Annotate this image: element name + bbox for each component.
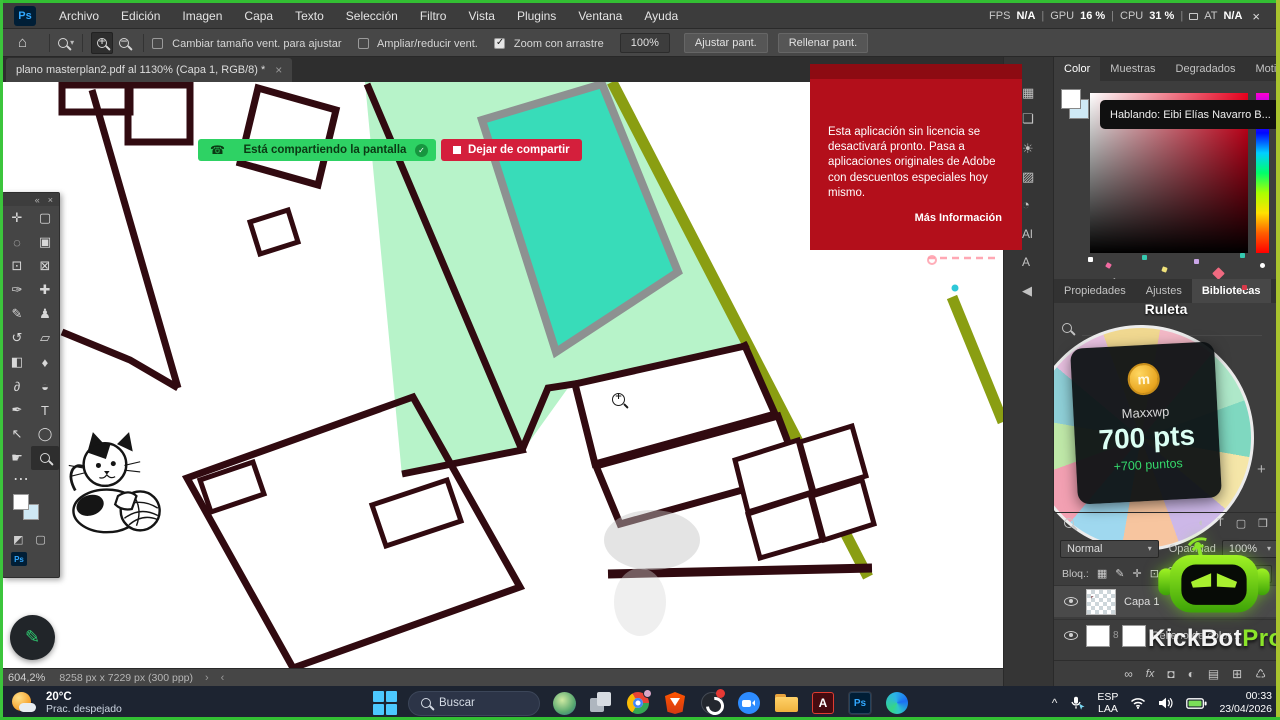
taskbar-explorer[interactable] (774, 691, 798, 715)
screen: + Ps Archivo Edición Imagen Capa Texto S… (0, 0, 1280, 720)
zoom-app-icon (738, 692, 760, 714)
cat-sticker (66, 428, 168, 545)
panel-curves-icon[interactable]: ◔ (1022, 197, 1030, 212)
visibility-eye-icon[interactable] (1064, 631, 1078, 640)
close-panel-icon[interactable]: × (48, 195, 53, 205)
search-icon (421, 698, 431, 708)
panel-adjustments-icon[interactable]: ☀ (1022, 141, 1034, 157)
hand-tool[interactable]: ☛ (3, 446, 31, 470)
fit-screen-button[interactable]: Ajustar pant. (684, 33, 768, 53)
lock-label: Bloq.: (1062, 568, 1089, 580)
frame-tool[interactable]: ⊠ (31, 254, 59, 278)
photoshop-logo: Ps (14, 6, 36, 26)
tab-bibliotecas[interactable]: Bibliotecas (1192, 279, 1271, 303)
file-explorer-icon (775, 694, 798, 713)
delete-layer-icon[interactable]: ♺ (1255, 667, 1266, 681)
menu-texto[interactable]: Texto (284, 3, 335, 29)
smudge-tool[interactable]: ∂ (3, 374, 31, 398)
blur-tool[interactable]: ♦ (31, 350, 59, 374)
tab-muestras[interactable]: Muestras (1100, 57, 1165, 81)
license-message: Esta aplicación sin licencia se desactiv… (810, 79, 1022, 201)
weather-temp: 20°C (46, 691, 122, 703)
tab-color[interactable]: Color (1054, 57, 1100, 81)
prize-card: m Maxxwp 700 pts +700 puntos (1070, 341, 1222, 504)
add-library-icon[interactable]: + (1257, 461, 1266, 478)
fill-screen-button[interactable]: Rellenar pant. (778, 33, 869, 53)
edit-toolbar-icon[interactable]: ⋯ (3, 470, 59, 488)
visibility-eye-icon[interactable] (1064, 597, 1078, 606)
tab-motivos[interactable]: Motivos (1245, 57, 1277, 81)
tray-expand-icon[interactable]: ^ (1052, 696, 1058, 710)
filter-shape-icon[interactable]: ▢ (1236, 517, 1246, 530)
search-icon[interactable] (1062, 323, 1072, 333)
weather-widget[interactable]: 20°C Prac. despejado (10, 690, 160, 716)
taskbar-task-view[interactable] (589, 691, 613, 715)
share-border (0, 0, 1280, 3)
type-tool[interactable]: T (31, 398, 59, 422)
taskbar-search[interactable]: Buscar (408, 691, 540, 716)
volume-icon[interactable] (1158, 697, 1174, 709)
chevron-down-icon[interactable]: ▾ (70, 38, 74, 47)
battery-icon[interactable] (1186, 698, 1207, 709)
layer-mask-icon[interactable]: ◘ (1167, 667, 1174, 681)
more-info-link[interactable]: Más Información (915, 212, 1002, 224)
ps-badge: Ps (11, 552, 27, 566)
chrome-icon (627, 692, 649, 714)
taskbar-zoom[interactable] (737, 691, 761, 715)
map-plot (240, 88, 336, 185)
taskbar-obs[interactable] (700, 691, 724, 715)
marquee-tool[interactable]: ▢ (31, 206, 59, 230)
speaking-toast: Hablando: Eibi Elías Navarro B... (1100, 100, 1280, 129)
object-selection-tool[interactable]: ▣ (31, 230, 59, 254)
map-boundary (62, 332, 178, 388)
zoom-tool[interactable] (31, 446, 59, 470)
menu-ventana[interactable]: Ventana (567, 3, 633, 29)
layer-group-icon[interactable]: ▤ (1208, 667, 1219, 681)
color-panel-tabs: Color Muestras Degradados Motivos (1054, 57, 1277, 81)
map-annotation-cyan (952, 285, 959, 292)
tools-panel: « × ✛ ▢ ◌ ▣ ⊡ ⊠ ✑ ✚ ✎ ♟ ↺ ▱ ◧ ♦ ∂ ◒ ✒ T … (2, 192, 60, 578)
layer-mask-thumbnail[interactable] (1122, 625, 1146, 647)
document-tab[interactable]: plano masterplan2.pdf al 1130% (Capa 1, … (6, 58, 292, 82)
language-indicator[interactable]: ESP LAA (1097, 691, 1118, 715)
taskbar-apps: A Ps (552, 691, 909, 715)
resize-windows-checkbox[interactable]: Cambiar tamaño vent. para ajustar (152, 36, 341, 50)
pen-tool[interactable]: ✒ (3, 398, 31, 422)
tab-close-icon[interactable]: × (275, 63, 282, 77)
prize-bonus: +700 puntos (1113, 456, 1183, 474)
kickbot-watermark: KickBotPro (1148, 530, 1280, 665)
lock-pixels-icon[interactable]: ✎ (1115, 567, 1124, 580)
gradient-tool[interactable]: ◧ (3, 350, 31, 374)
robot-icon (1155, 530, 1273, 626)
new-layer-icon[interactable]: ⊞ (1232, 667, 1242, 681)
phone-icon: ☎ (210, 143, 225, 157)
weather-condition: Prac. despejado (46, 703, 122, 715)
brush-tool[interactable]: ✎ (3, 302, 31, 326)
zoom-cursor-icon: + (612, 393, 625, 406)
path-selection-tool[interactable]: ↖ (3, 422, 31, 446)
tab-ajustes[interactable]: Ajustes (1136, 279, 1192, 303)
map-smudge (604, 510, 700, 570)
menu-plugins[interactable]: Plugins (506, 3, 567, 29)
acrobat-icon: A (812, 692, 834, 714)
zoom-windows-checkbox[interactable]: Ampliar/reducir vent. (358, 36, 478, 50)
task-view-icon (590, 692, 612, 714)
panel-audio-icon[interactable]: ◀ (1022, 283, 1032, 299)
photoshop-icon: Ps (849, 692, 871, 714)
license-warning-banner: Esta aplicación sin licencia se desactiv… (810, 64, 1022, 250)
link-layers-icon[interactable]: ∞ (1124, 667, 1133, 681)
status-bar: 604,2% 8258 px x 7229 px (300 ppp) › ‹ (0, 668, 1003, 686)
options-bar: ⌂ ▾ + − Cambiar tamaño vent. para ajusta… (0, 29, 1280, 57)
confetti (1242, 285, 1247, 290)
confetti (1194, 259, 1199, 264)
lasso-tool[interactable]: ◌ (3, 230, 31, 254)
search-icon[interactable] (1064, 518, 1074, 528)
dodge-tool[interactable]: ◒ (31, 374, 59, 398)
taskbar-edge[interactable] (885, 691, 909, 715)
taskbar: 20°C Prac. despejado Buscar A Ps ^ (0, 686, 1280, 720)
lock-position-icon[interactable]: ✛ (1132, 567, 1141, 580)
panel-ai-icon[interactable]: Al (1022, 227, 1033, 241)
check-icon: ✓ (415, 144, 428, 157)
lock-transparency-icon[interactable]: ▦ (1097, 567, 1107, 580)
link-chain-icon: 8 (1113, 630, 1119, 641)
crop-tool[interactable]: ⊡ (3, 254, 31, 278)
history-brush-tool[interactable]: ↺ (3, 326, 31, 350)
blend-mode-select[interactable]: Normal▾ (1060, 540, 1159, 558)
confetti (1260, 263, 1265, 268)
eraser-tool[interactable]: ▱ (31, 326, 59, 350)
filter-smart-icon[interactable]: ❒ (1258, 517, 1268, 530)
collapse-panel-icon[interactable]: « (35, 195, 40, 205)
layer-thumbnail[interactable] (1086, 589, 1116, 615)
quick-mask-icon[interactable]: ◩ (13, 533, 23, 546)
taskbar-brave[interactable] (663, 691, 687, 715)
filter-type-icon[interactable]: T (1217, 517, 1224, 529)
confetti (1088, 257, 1093, 262)
panel-gradients-icon[interactable]: ▨ (1022, 169, 1034, 185)
map-smudge (614, 568, 666, 636)
edge-icon (886, 692, 908, 714)
filter-adjustment-icon[interactable]: ◐ (1198, 517, 1205, 529)
brave-icon (665, 692, 685, 714)
status-arrow-icon[interactable]: › (205, 672, 209, 684)
zoom-tool-icon[interactable] (58, 38, 68, 48)
scrubby-zoom-checkbox[interactable]: Zoom con arrastre (494, 36, 604, 50)
menu-edicion[interactable]: Edición (110, 3, 171, 29)
checkbox-icon[interactable] (152, 38, 163, 49)
map-plot (250, 210, 298, 254)
zoom-100-button[interactable]: 100% (620, 33, 670, 53)
wifi-icon[interactable] (1130, 697, 1146, 709)
properties-panel-tabs: Propiedades Ajustes Bibliotecas (1054, 279, 1277, 303)
confetti (1240, 253, 1245, 258)
panel-character-icon[interactable]: A (1022, 255, 1030, 269)
menu-ayuda[interactable]: Ayuda (633, 3, 689, 29)
confetti (1105, 262, 1112, 269)
move-tool[interactable]: ✛ (3, 206, 31, 230)
zoom-out-button[interactable]: − (113, 32, 135, 54)
coin-icon: m (1127, 362, 1161, 396)
confetti (1142, 255, 1147, 260)
clone-stamp-tool[interactable]: ♟ (31, 302, 59, 326)
taskbar-nature-app[interactable] (552, 691, 576, 715)
stop-sharing-button[interactable]: Dejar de compartir (441, 139, 582, 161)
tab-propiedades[interactable]: Propiedades (1054, 279, 1136, 303)
home-icon[interactable]: ⌂ (18, 34, 27, 51)
taskbar-acrobat[interactable]: A (811, 691, 835, 715)
panel-comments-icon[interactable]: ❏ (1022, 111, 1034, 127)
ellipse-tool[interactable]: ◯ (31, 422, 59, 446)
fill-layer-thumbnail[interactable] (1086, 625, 1110, 647)
nature-app-icon (553, 692, 576, 715)
document-info: 8258 px x 7229 px (300 ppp) (59, 672, 193, 684)
annotate-button[interactable]: ✎ (10, 615, 55, 660)
screen-share-bar: ☎ Está compartiendo la pantalla ✓ Dejar … (198, 139, 582, 161)
kickbot-wordmark: KickBotPro (1148, 625, 1280, 653)
taskbar-photoshop[interactable]: Ps (848, 691, 872, 715)
performance-overlay: FPSN/A | GPU16 % | CPU31 % | ATN/A × (989, 3, 1260, 29)
pencil-icon: ✎ (25, 627, 40, 648)
latency-icon (1189, 13, 1198, 20)
screen-mode-icon[interactable]: ▢ (35, 533, 45, 546)
prize-points: 700 pts (1098, 419, 1196, 456)
foreground-color-swatch[interactable] (13, 494, 29, 510)
system-tray: ^ ESP LAA (1050, 686, 1272, 720)
healing-brush-tool[interactable]: ✚ (31, 278, 59, 302)
ruleta-title: Ruleta (1054, 301, 1277, 317)
menu-seleccion[interactable]: Selección (335, 3, 409, 29)
menu-capa[interactable]: Capa (233, 3, 284, 29)
zoom-in-button[interactable]: + (91, 32, 113, 54)
checkbox-icon[interactable] (358, 38, 369, 49)
prize-winner: Maxxwp (1121, 404, 1169, 421)
map-plot (372, 480, 461, 546)
scroll-left-icon[interactable]: ‹ (221, 672, 225, 684)
stop-icon (453, 146, 461, 154)
zoom-level[interactable]: 604,2% (8, 672, 45, 684)
menu-archivo[interactable]: Archivo (48, 3, 110, 29)
confetti (1212, 267, 1225, 280)
map-road-2 (952, 297, 1003, 422)
share-border (1276, 0, 1280, 720)
start-button[interactable] (372, 690, 398, 716)
adjustment-layer-icon[interactable]: ◐ (1188, 667, 1195, 681)
menu-bar: Ps Archivo Edición Imagen Capa Texto Sel… (0, 3, 1280, 29)
map-plot (128, 85, 190, 142)
eyedropper-tool[interactable]: ✑ (3, 278, 31, 302)
mic-icon[interactable] (1069, 696, 1085, 710)
overlay-close-icon[interactable]: × (1252, 9, 1260, 24)
obs-icon (701, 692, 723, 714)
clock[interactable]: 00:33 23/04/2026 (1219, 690, 1272, 716)
confetti (1161, 266, 1167, 272)
layer-effects-icon[interactable]: fx (1146, 668, 1155, 680)
color-swatches[interactable] (3, 488, 59, 530)
panel-history-icon[interactable]: ▦ (1022, 85, 1034, 101)
share-border (0, 0, 3, 720)
menu-filtro[interactable]: Filtro (409, 3, 458, 29)
sharing-status-pill: ☎ Está compartiendo la pantalla ✓ (198, 139, 436, 161)
weather-icon (10, 690, 38, 716)
checkbox-checked-icon[interactable] (494, 38, 505, 49)
menu-imagen[interactable]: Imagen (171, 3, 233, 29)
tab-degradados[interactable]: Degradados (1166, 57, 1246, 81)
map-boundary (92, 90, 178, 388)
taskbar-chrome[interactable] (626, 691, 650, 715)
menu-vista[interactable]: Vista (457, 3, 505, 29)
